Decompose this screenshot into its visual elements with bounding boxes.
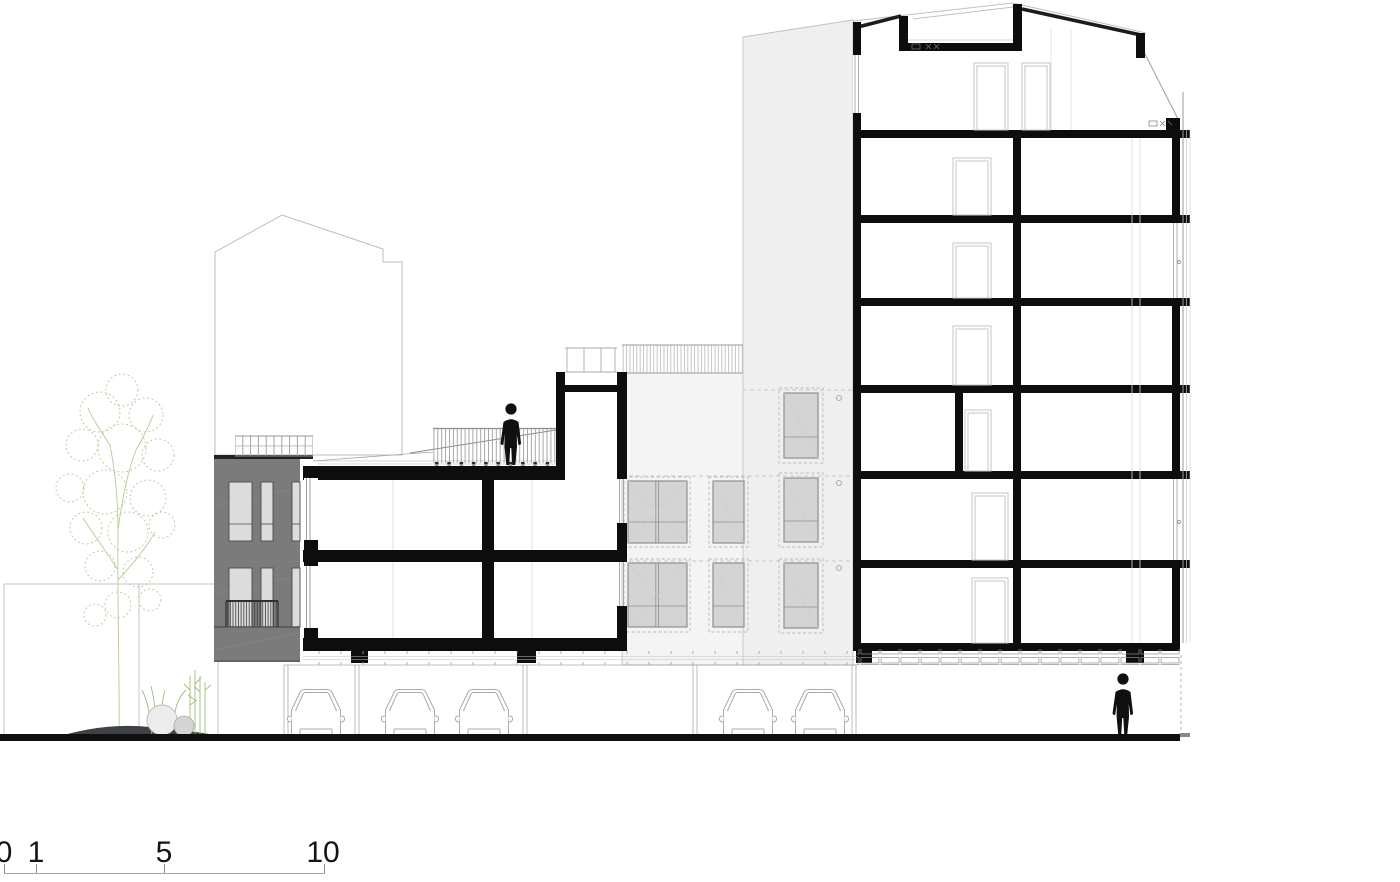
scale-tick	[324, 864, 325, 873]
scale-bar: 0 1 5 10	[0, 838, 360, 882]
architectural-drawing-canvas: 0 1 5 10	[0, 0, 1400, 882]
garden-wall	[4, 584, 218, 737]
gray-building	[214, 436, 313, 662]
scale-label-0: 0	[0, 838, 12, 868]
tall-section-building	[853, 3, 1190, 735]
gray-building-roof-railing	[235, 436, 313, 456]
gray-building-balcony-railing	[226, 601, 278, 627]
scale-label-10: 10	[306, 838, 339, 868]
section-elevation-drawing	[0, 0, 1400, 882]
stone-sphere-large	[147, 705, 177, 735]
scale-tick	[164, 864, 165, 873]
middle-building	[622, 20, 857, 665]
interior-doors	[953, 63, 1050, 643]
stone-sphere-small	[174, 716, 194, 736]
scale-tick	[36, 864, 37, 873]
terrace-railing	[433, 429, 556, 468]
stair-roof-railing	[565, 348, 617, 372]
background-building-outline	[215, 215, 402, 455]
person-on-street	[1113, 673, 1133, 735]
middle-building-roof-railing	[622, 345, 743, 373]
scale-baseline	[4, 873, 325, 874]
parking-cars	[287, 690, 848, 738]
scale-tick	[4, 864, 5, 873]
basement-parking	[284, 649, 1180, 737]
